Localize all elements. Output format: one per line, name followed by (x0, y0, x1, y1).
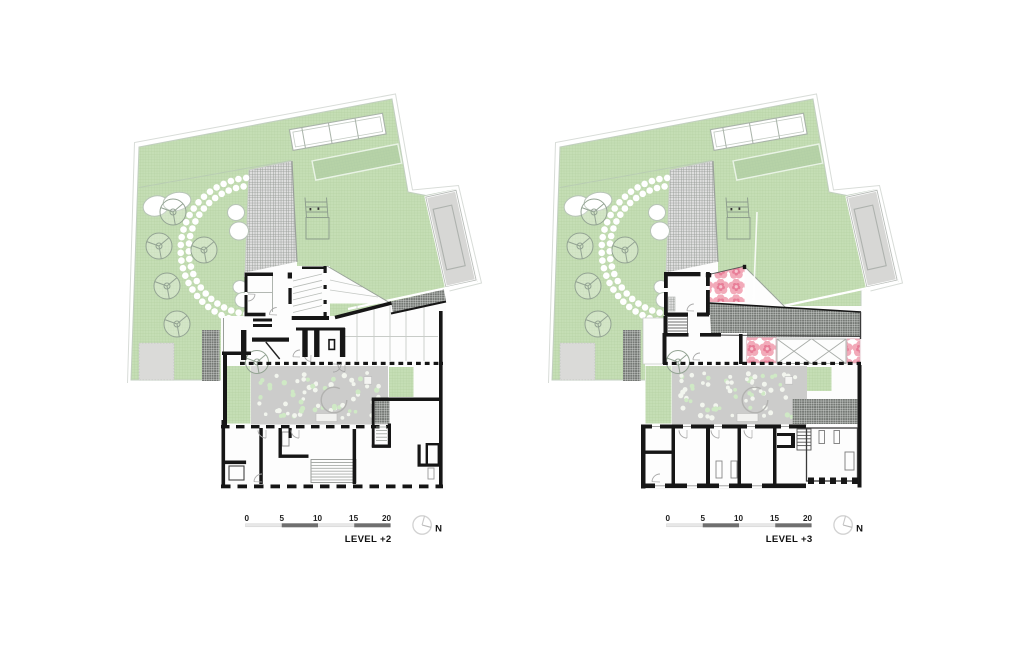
svg-text:LEVEL +2: LEVEL +2 (345, 534, 392, 545)
svg-text:N: N (435, 523, 442, 534)
svg-text:15: 15 (770, 514, 780, 523)
svg-text:15: 15 (349, 514, 359, 523)
svg-text:20: 20 (382, 514, 392, 523)
svg-text:LEVEL +3: LEVEL +3 (766, 534, 813, 545)
svg-text:10: 10 (734, 514, 744, 523)
svg-text:0: 0 (666, 514, 671, 523)
svg-text:0: 0 (245, 514, 250, 523)
svg-text:N: N (856, 523, 863, 534)
svg-text:5: 5 (280, 514, 285, 523)
svg-text:20: 20 (803, 514, 813, 523)
svg-text:5: 5 (701, 514, 706, 523)
svg-text:10: 10 (313, 514, 323, 523)
